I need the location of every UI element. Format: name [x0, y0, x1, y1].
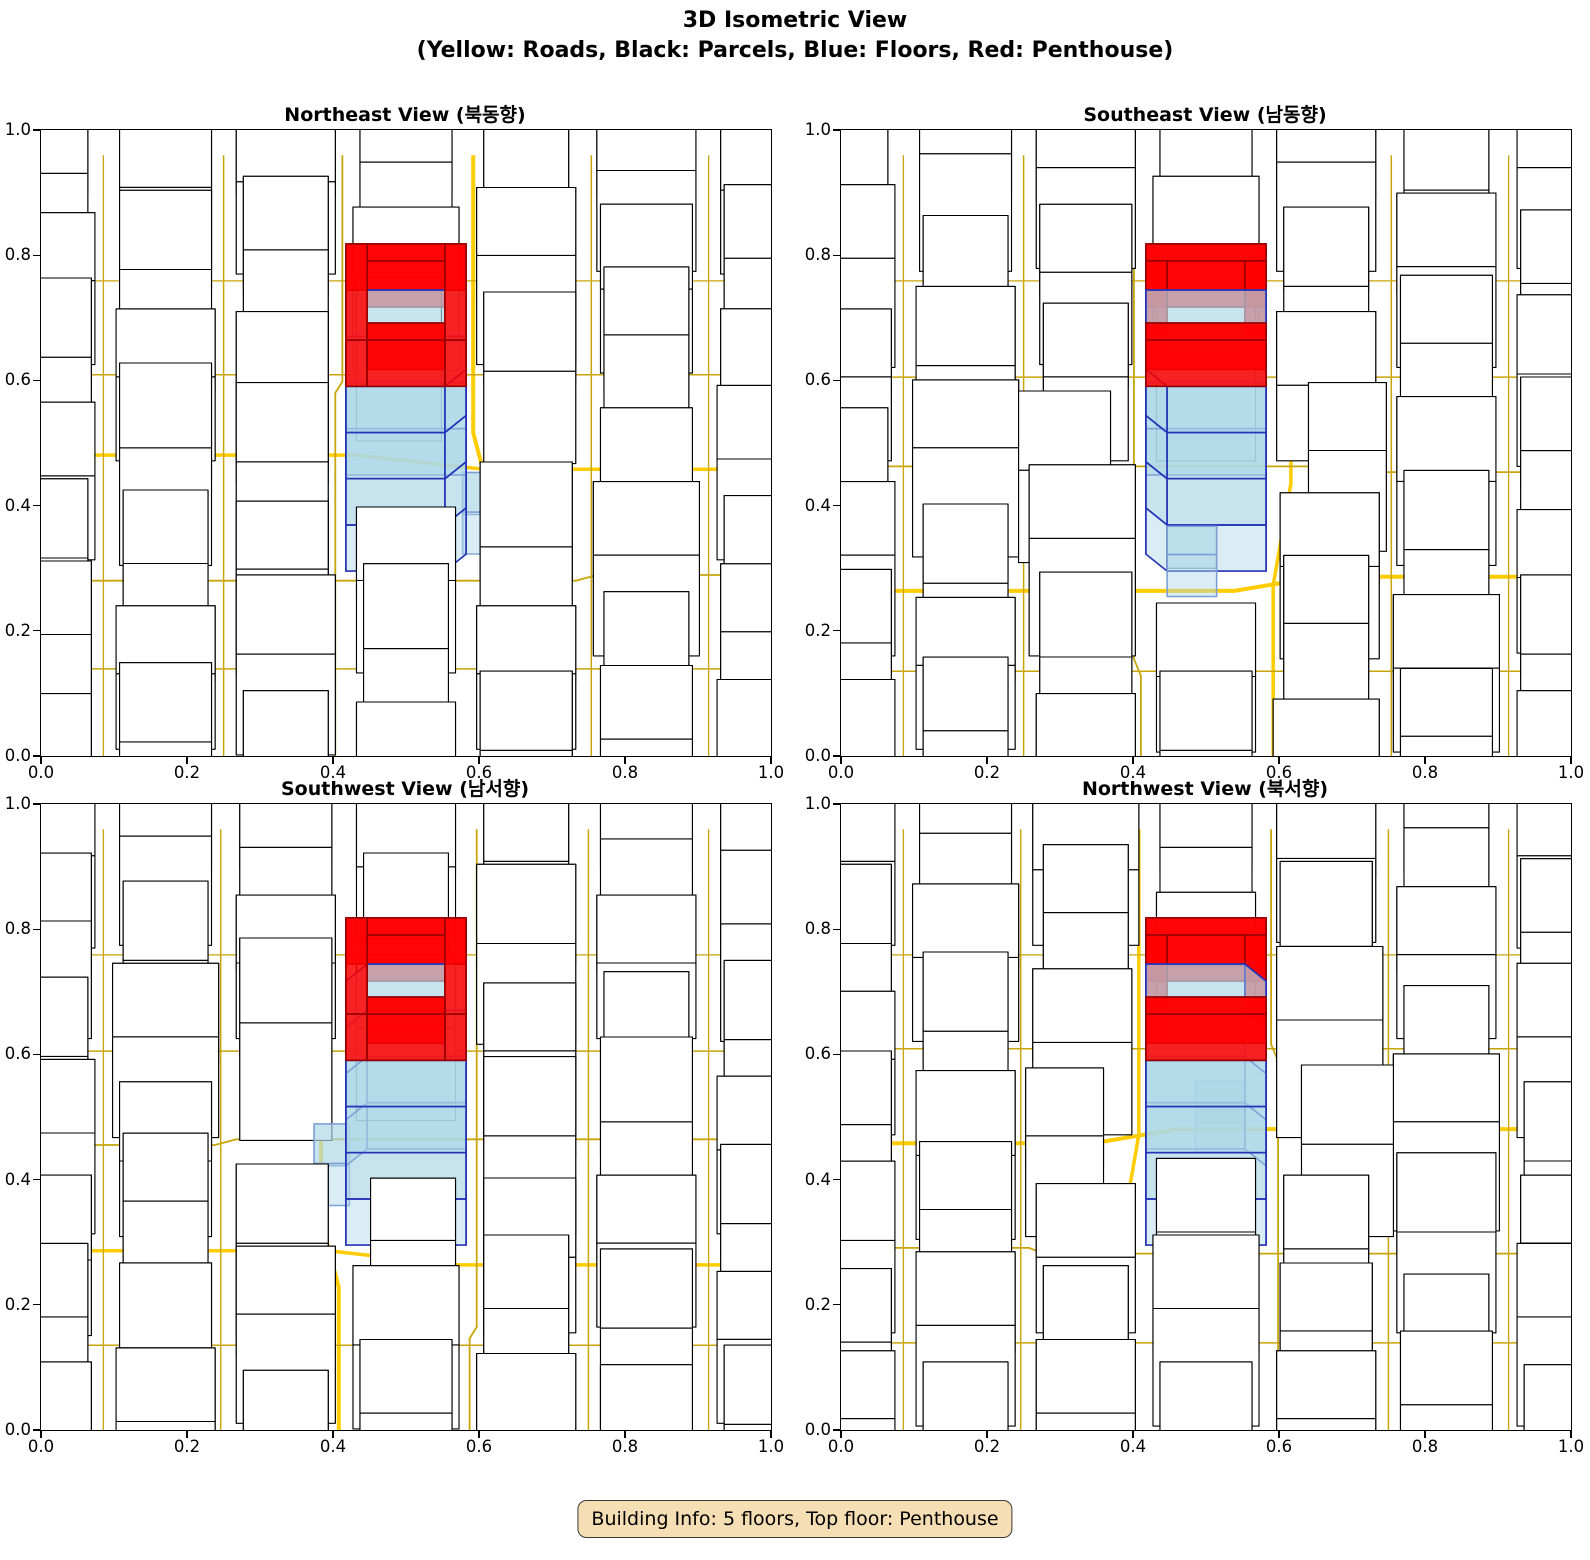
y-tick-label: 1.0	[0, 794, 31, 814]
y-tick-mark	[833, 505, 840, 506]
y-tick-label: 0.0	[795, 1420, 831, 1440]
x-tick-label: 1.0	[758, 1437, 784, 1457]
subplot-grid: Northeast View (북동향)0.00.00.20.20.40.40.…	[0, 103, 1570, 1451]
isometric-scene-southeast	[841, 130, 1571, 756]
plot-area-northwest: 0.00.00.20.20.40.40.60.60.80.81.01.0	[840, 803, 1572, 1431]
x-tick-mark	[1132, 1431, 1133, 1438]
x-tick-label: 1.0	[1558, 1437, 1584, 1457]
subplot-title-northwest: Northwest View (북서향)	[840, 777, 1570, 803]
figure-title-line2: (Yellow: Roads, Black: Parcels, Blue: Fl…	[0, 36, 1590, 66]
x-tick-label: 0.4	[1120, 1437, 1146, 1457]
x-tick-mark	[186, 1431, 187, 1438]
x-tick-mark	[1570, 1431, 1571, 1438]
y-tick-mark	[33, 929, 40, 930]
y-tick-mark	[833, 1054, 840, 1055]
figure-title: 3D Isometric View (Yellow: Roads, Black:…	[0, 6, 1590, 66]
figure-canvas: { "figure": { "title_line1": "3D Isometr…	[0, 0, 1590, 1560]
x-tick-mark	[1570, 757, 1571, 764]
subplot-title-southwest: Southwest View (남서향)	[40, 777, 770, 803]
y-tick-label: 0.4	[0, 496, 31, 516]
y-tick-mark	[33, 1179, 40, 1180]
subplot-northwest: Northwest View (북서향)0.00.00.20.20.40.40.…	[800, 777, 1570, 1451]
x-tick-mark	[40, 757, 41, 764]
x-tick-mark	[840, 757, 841, 764]
isometric-scene-southwest	[41, 804, 771, 1430]
y-tick-mark	[833, 1429, 840, 1430]
x-tick-mark	[332, 1431, 333, 1438]
y-tick-label: 0.6	[795, 1044, 831, 1064]
x-tick-mark	[624, 757, 625, 764]
building-info-box: Building Info: 5 floors, Top floor: Pent…	[577, 1500, 1012, 1538]
subplot-title-northeast: Northeast View (북동향)	[40, 103, 770, 129]
y-tick-mark	[33, 755, 40, 756]
y-tick-label: 0.6	[0, 370, 31, 390]
x-tick-label: 0.8	[612, 1437, 638, 1457]
y-tick-mark	[833, 755, 840, 756]
y-tick-mark	[33, 1304, 40, 1305]
y-tick-mark	[833, 929, 840, 930]
x-tick-mark	[1424, 757, 1425, 764]
subplot-title-southeast: Southeast View (남동향)	[840, 103, 1570, 129]
plot-area-southwest: 0.00.00.20.20.40.40.60.60.80.81.01.0	[40, 803, 772, 1431]
x-tick-mark	[986, 1431, 987, 1438]
y-tick-label: 0.2	[795, 621, 831, 641]
plot-area-northeast: 0.00.00.20.20.40.40.60.60.80.81.01.0	[40, 129, 772, 757]
y-tick-mark	[833, 255, 840, 256]
x-tick-mark	[770, 757, 771, 764]
x-tick-label: 0.0	[28, 1437, 54, 1457]
y-tick-mark	[33, 255, 40, 256]
x-tick-mark	[840, 1431, 841, 1438]
x-tick-mark	[332, 757, 333, 764]
x-tick-mark	[478, 1431, 479, 1438]
y-tick-label: 0.0	[0, 746, 31, 766]
figure-title-line1: 3D Isometric View	[0, 6, 1590, 36]
y-tick-mark	[33, 630, 40, 631]
x-tick-mark	[1278, 1431, 1279, 1438]
x-tick-label: 0.6	[1266, 1437, 1292, 1457]
isometric-scene-northwest	[841, 804, 1571, 1430]
y-tick-label: 1.0	[0, 120, 31, 140]
x-tick-mark	[40, 1431, 41, 1438]
x-tick-mark	[770, 1431, 771, 1438]
x-tick-mark	[986, 757, 987, 764]
y-tick-label: 0.0	[0, 1420, 31, 1440]
y-tick-mark	[33, 129, 40, 130]
x-tick-mark	[1132, 757, 1133, 764]
y-tick-mark	[833, 380, 840, 381]
x-tick-label: 0.8	[1412, 1437, 1438, 1457]
y-tick-mark	[833, 1304, 840, 1305]
subplot-northeast: Northeast View (북동향)0.00.00.20.20.40.40.…	[0, 103, 770, 777]
y-tick-label: 0.8	[0, 919, 31, 939]
x-tick-label: 0.2	[974, 1437, 1000, 1457]
y-tick-label: 0.8	[795, 919, 831, 939]
y-tick-mark	[833, 129, 840, 130]
y-tick-mark	[33, 1429, 40, 1430]
plot-area-southeast: 0.00.00.20.20.40.40.60.60.80.81.01.0	[840, 129, 1572, 757]
x-tick-label: 0.2	[174, 1437, 200, 1457]
x-tick-mark	[186, 757, 187, 764]
y-tick-label: 1.0	[795, 794, 831, 814]
x-tick-label: 0.6	[466, 1437, 492, 1457]
isometric-scene-northeast	[41, 130, 771, 756]
y-tick-label: 0.6	[0, 1044, 31, 1064]
y-tick-mark	[833, 1179, 840, 1180]
x-tick-mark	[478, 757, 479, 764]
y-tick-label: 0.8	[0, 245, 31, 265]
y-tick-label: 0.4	[795, 496, 831, 516]
y-tick-mark	[33, 803, 40, 804]
y-tick-label: 0.6	[795, 370, 831, 390]
y-tick-label: 0.2	[0, 1295, 31, 1315]
x-tick-label: 0.4	[320, 1437, 346, 1457]
subplot-southwest: Southwest View (남서향)0.00.00.20.20.40.40.…	[0, 777, 770, 1451]
y-tick-label: 0.2	[0, 621, 31, 641]
y-tick-label: 0.4	[795, 1170, 831, 1190]
y-tick-mark	[33, 505, 40, 506]
y-tick-label: 0.8	[795, 245, 831, 265]
x-tick-mark	[1424, 1431, 1425, 1438]
x-tick-label: 0.0	[828, 1437, 854, 1457]
y-tick-mark	[33, 1054, 40, 1055]
y-tick-mark	[833, 803, 840, 804]
y-tick-mark	[833, 630, 840, 631]
y-tick-label: 0.2	[795, 1295, 831, 1315]
y-tick-label: 1.0	[795, 120, 831, 140]
subplot-southeast: Southeast View (남동향)0.00.00.20.20.40.40.…	[800, 103, 1570, 777]
y-tick-mark	[33, 380, 40, 381]
x-tick-mark	[624, 1431, 625, 1438]
y-tick-label: 0.4	[0, 1170, 31, 1190]
x-tick-mark	[1278, 757, 1279, 764]
y-tick-label: 0.0	[795, 746, 831, 766]
